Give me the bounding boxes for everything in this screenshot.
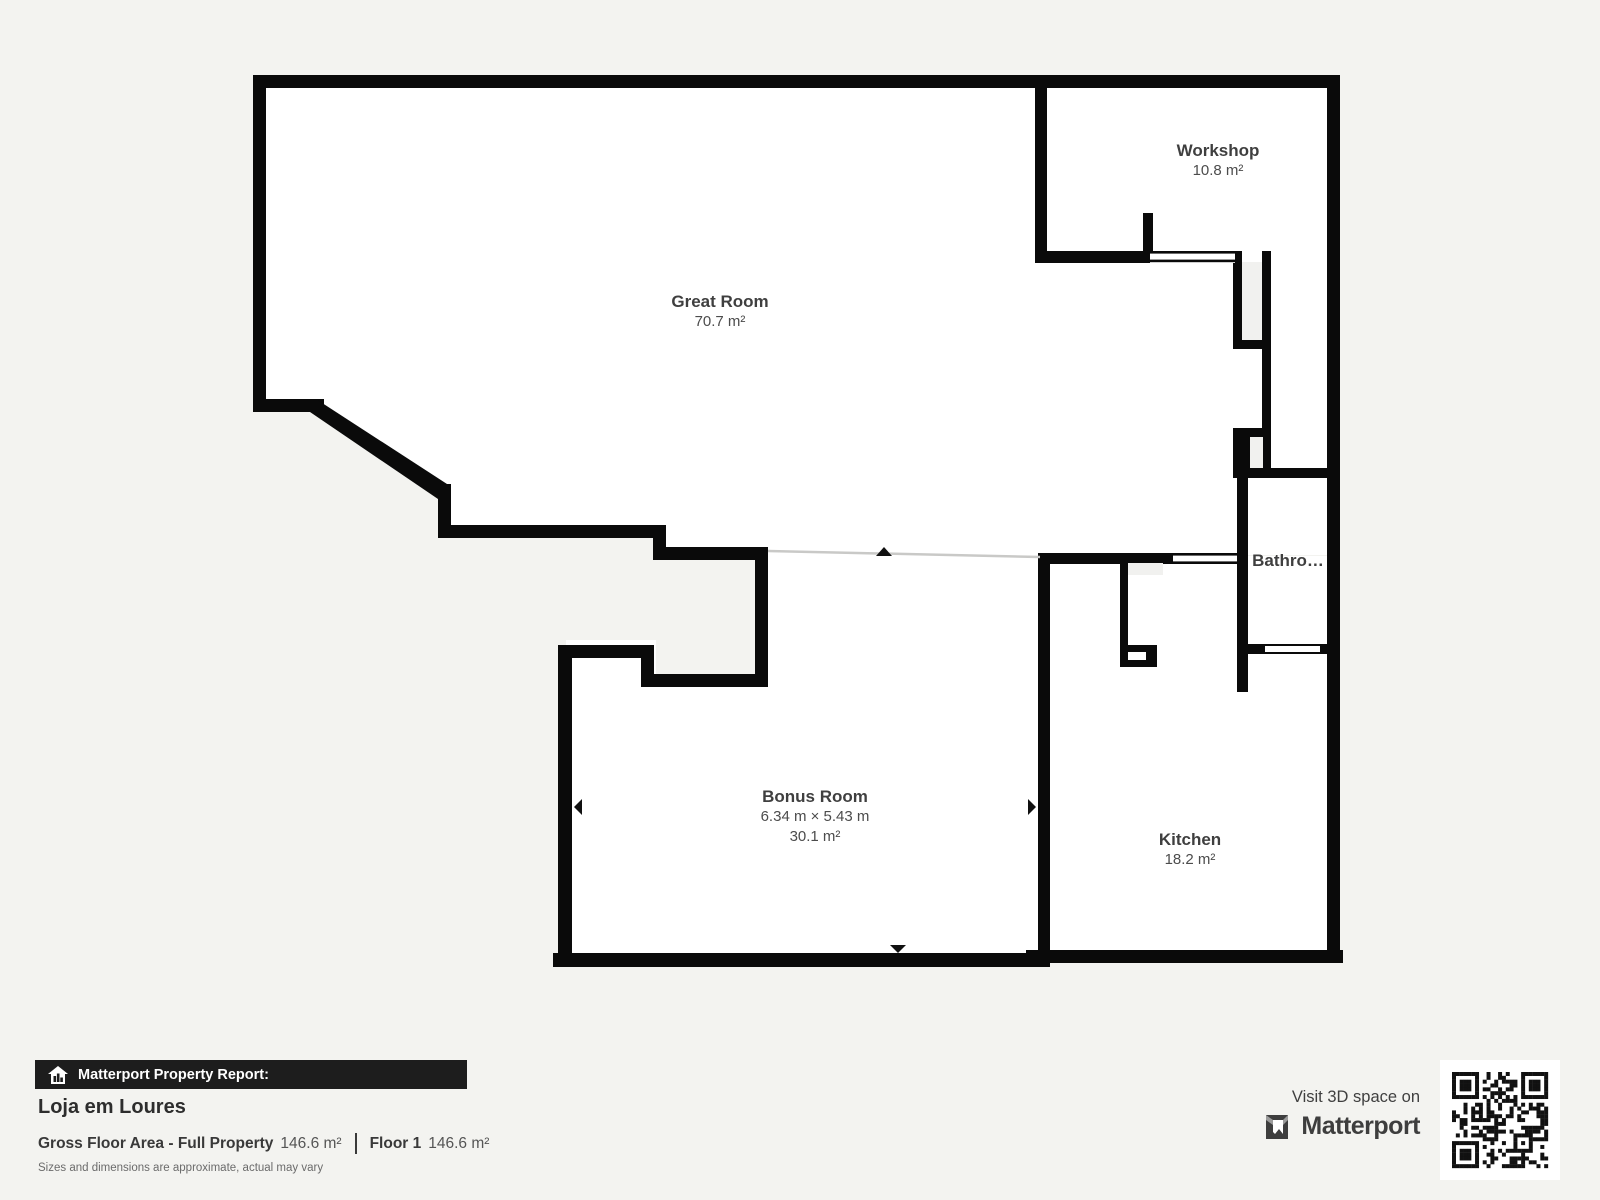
room-label-bonus-room: Bonus Room 6.34 m × 5.43 m 30.1 m²	[761, 787, 870, 847]
room-label-kitchen: Kitchen 18.2 m²	[1159, 830, 1221, 870]
visit-3d-text: Visit 3D space on	[1262, 1088, 1420, 1107]
room-area: 30.1 m²	[761, 827, 870, 847]
room-area: 70.7 m²	[671, 312, 768, 332]
stats-divider	[355, 1133, 357, 1154]
room-name: Kitchen	[1159, 830, 1221, 850]
matterport-wordmark: Matterport	[1301, 1112, 1420, 1141]
property-title: Loja em Loures	[38, 1096, 186, 1119]
room-label-workshop: Workshop 10.8 m²	[1177, 141, 1260, 181]
disclaimer-text: Sizes and dimensions are approximate, ac…	[38, 1162, 323, 1174]
report-bar: Matterport Property Report:	[35, 1060, 467, 1089]
brand-row: Matterport	[1262, 1112, 1420, 1141]
report-bar-label: Matterport Property Report:	[78, 1067, 269, 1083]
room-name: Bonus Room	[761, 787, 870, 807]
room-area: 18.2 m²	[1159, 850, 1221, 870]
matterport-logo-icon	[1262, 1113, 1292, 1141]
gross-floor-area-label: Gross Floor Area - Full Property	[38, 1135, 273, 1153]
property-report-page: Great Room 70.7 m² Workshop 10.8 m² Bath…	[0, 0, 1600, 1200]
room-name: Workshop	[1177, 141, 1260, 161]
floor-label: Floor 1	[370, 1135, 422, 1153]
room-label-bathroom: Bathro…	[1252, 551, 1324, 571]
floor-value: 146.6 m²	[428, 1135, 489, 1153]
building-report-icon	[48, 1066, 68, 1084]
floorplan	[0, 0, 1600, 1200]
room-name: Great Room	[671, 292, 768, 312]
room-label-great-room: Great Room 70.7 m²	[671, 292, 768, 332]
report-stats: Gross Floor Area - Full Property 146.6 m…	[38, 1133, 489, 1154]
promo-block: Visit 3D space on Matterport	[1262, 1088, 1420, 1141]
qr-code	[1440, 1060, 1560, 1180]
gross-floor-area-value: 146.6 m²	[280, 1135, 341, 1153]
room-dimensions: 6.34 m × 5.43 m	[761, 807, 870, 827]
room-name: Bathro…	[1252, 551, 1324, 571]
room-area: 10.8 m²	[1177, 161, 1260, 181]
